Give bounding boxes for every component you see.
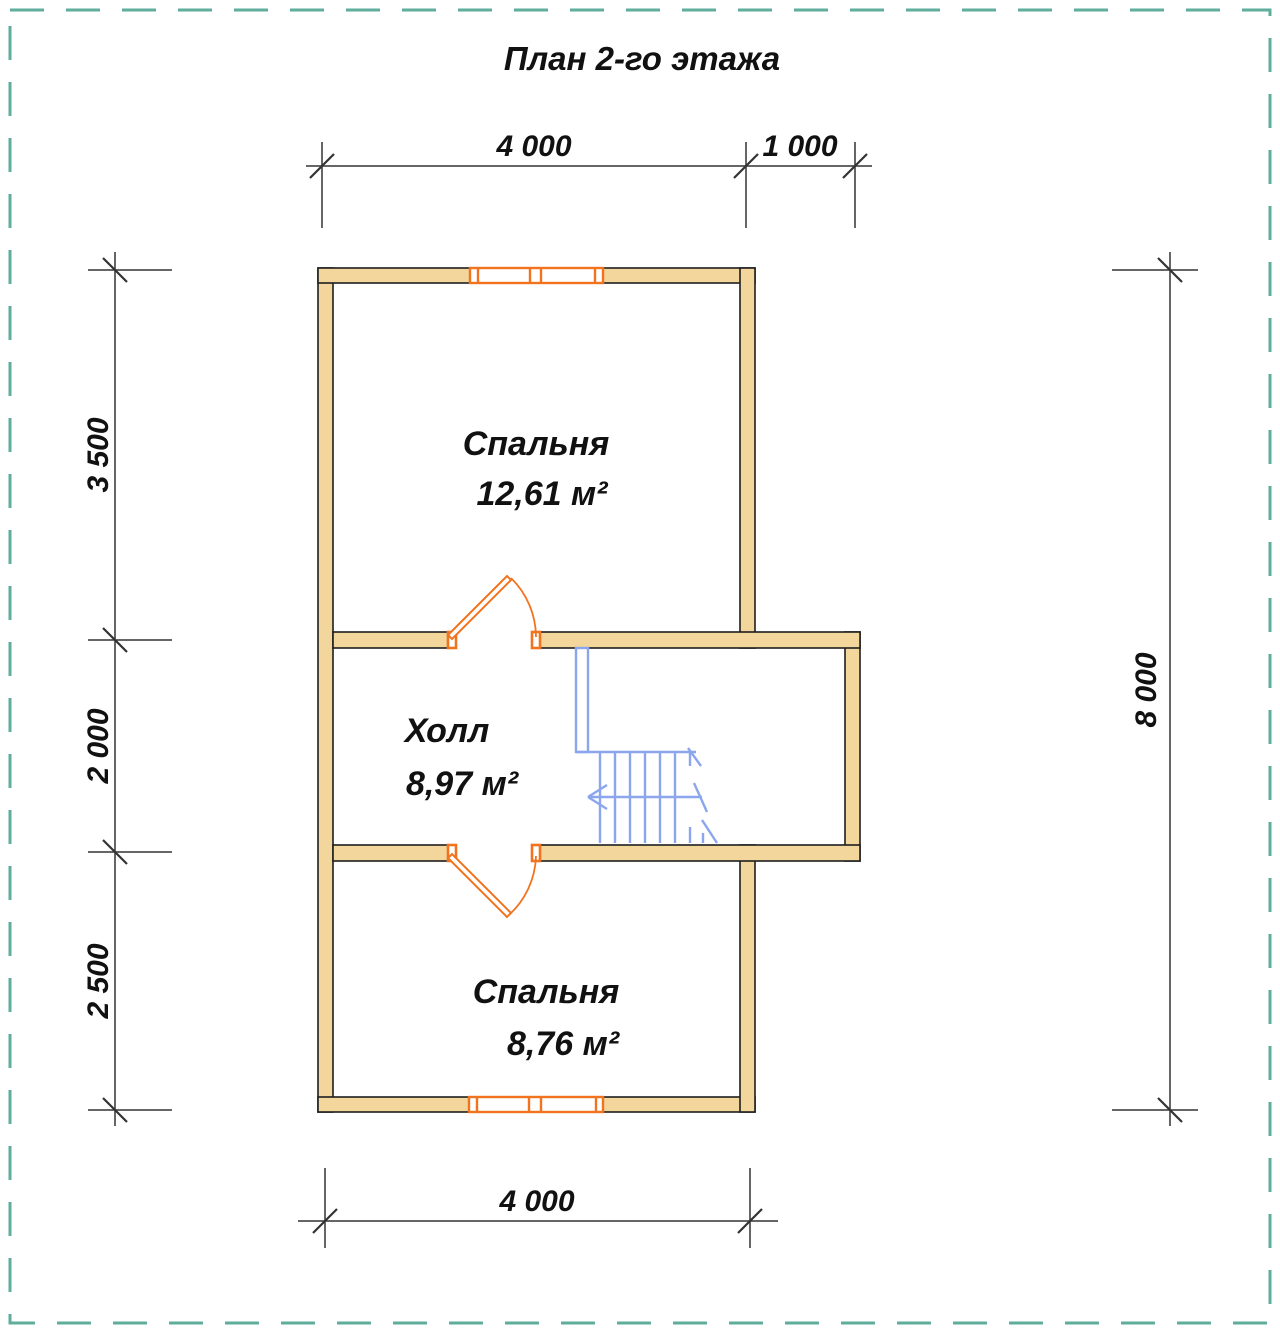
stair-break-line	[688, 748, 717, 843]
wall-hall-bottom-left-segment	[333, 845, 448, 861]
room-name-bedroom-bottom: Спальня	[473, 973, 620, 1011]
window-top	[470, 268, 603, 283]
dim-label-left-2500: 2 500	[82, 943, 115, 1019]
stairs	[576, 648, 717, 843]
stair-stringer	[576, 648, 588, 752]
window-bottom	[469, 1097, 603, 1112]
window-frame	[469, 1097, 603, 1112]
wall-right-lower	[740, 845, 755, 1112]
door-swing-arc-bottom	[509, 856, 536, 915]
dim-chain-right: 8 000	[1112, 252, 1198, 1126]
dim-label-left-2000: 2 000	[82, 708, 115, 784]
room-area-bedroom-bottom: 8,76 м²	[507, 1025, 621, 1063]
window-frame	[470, 268, 603, 283]
dim-label-left-3500: 3 500	[82, 417, 115, 492]
door-swing-arc-top	[511, 578, 536, 637]
room-name-bedroom-top: Спальня	[463, 425, 610, 463]
room-name-hall: Холл	[403, 712, 489, 750]
dim-chain-bottom: 4 000	[298, 1168, 778, 1248]
room-area-hall: 8,97 м²	[406, 765, 520, 803]
wall-bumpout-right	[845, 632, 860, 861]
wall-left-exterior	[318, 268, 333, 1112]
sheet-dashed-border	[10, 10, 1270, 1323]
door-leaf-bottom	[448, 854, 511, 917]
dim-chain-left: 3 500 2 000 2 500	[82, 252, 172, 1126]
room-area-bedroom-top: 12,61 м²	[476, 475, 609, 513]
door-leaf-top	[448, 576, 511, 639]
floor-plan-svg: План 2-го этажа 4 000 1 000 3 500 2 000 …	[0, 0, 1280, 1333]
dim-label-top-1000: 1 000	[762, 130, 837, 163]
wall-hall-top-right-segment	[540, 632, 860, 648]
page-title: План 2-го этажа	[504, 40, 780, 77]
dim-label-bottom-4000: 4 000	[498, 1185, 574, 1218]
dim-chain-top: 4 000 1 000	[306, 130, 872, 228]
dim-label-top-4000: 4 000	[495, 130, 571, 163]
dimensions: 4 000 1 000 3 500 2 000 2 500 8 000 4 00…	[82, 130, 1198, 1248]
floor-plan-page: План 2-го этажа 4 000 1 000 3 500 2 000 …	[0, 0, 1280, 1333]
dim-label-right-8000: 8 000	[1130, 652, 1163, 727]
wall-right-upper	[740, 268, 755, 648]
wall-hall-bottom-right-segment	[540, 845, 860, 861]
wall-hall-top-left-segment	[333, 632, 448, 648]
